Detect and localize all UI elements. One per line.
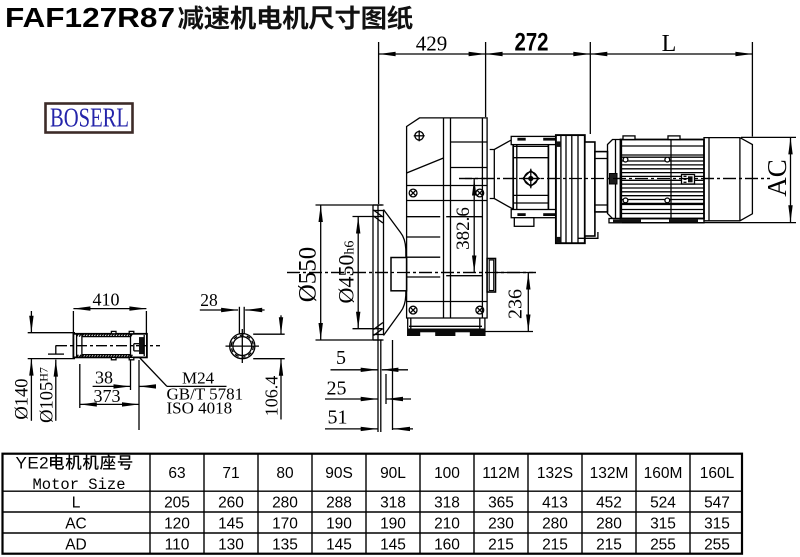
svg-text:315: 315: [704, 516, 730, 533]
svg-text:410: 410: [93, 290, 120, 310]
svg-text:145: 145: [380, 537, 406, 554]
svg-text:BOSERL: BOSERL: [50, 103, 129, 133]
svg-text:382.6: 382.6: [453, 207, 474, 250]
svg-text:132S: 132S: [537, 465, 573, 482]
svg-text:288: 288: [326, 495, 352, 512]
svg-text:130: 130: [218, 537, 244, 554]
svg-text:90L: 90L: [380, 465, 406, 482]
svg-text:28: 28: [200, 290, 218, 310]
svg-text:365: 365: [488, 495, 514, 512]
svg-text:318: 318: [434, 495, 460, 512]
svg-text:272: 272: [515, 29, 549, 57]
svg-text:190: 190: [326, 516, 352, 533]
svg-text:Ø550: Ø550: [295, 247, 322, 303]
svg-text:5: 5: [336, 347, 346, 369]
svg-text:38: 38: [95, 368, 113, 388]
svg-text:315: 315: [650, 516, 676, 533]
svg-text:373: 373: [94, 386, 121, 406]
svg-text:FAF127R87: FAF127R87: [5, 2, 175, 33]
svg-text:190: 190: [380, 516, 406, 533]
svg-text:90S: 90S: [325, 465, 353, 482]
svg-text:L: L: [662, 31, 677, 57]
svg-text:80: 80: [276, 465, 294, 482]
svg-text:280: 280: [272, 495, 298, 512]
svg-text:120: 120: [164, 516, 190, 533]
svg-text:145: 145: [326, 537, 352, 554]
svg-text:260: 260: [218, 495, 244, 512]
svg-text:YE2: YE2: [16, 454, 50, 473]
svg-text:112M: 112M: [482, 465, 520, 482]
svg-text:524: 524: [650, 495, 676, 512]
svg-text:452: 452: [596, 495, 622, 512]
svg-text:132M: 132M: [590, 465, 629, 482]
svg-text:25: 25: [327, 378, 347, 400]
svg-text:210: 210: [434, 516, 460, 533]
svg-text:110: 110: [165, 537, 190, 554]
svg-text:230: 230: [488, 516, 514, 533]
svg-text:215: 215: [488, 537, 514, 554]
svg-text:135: 135: [272, 537, 298, 554]
svg-text:215: 215: [542, 537, 568, 554]
svg-text:160L: 160L: [700, 465, 735, 482]
svg-text:160: 160: [434, 537, 460, 554]
svg-text:106.4: 106.4: [262, 376, 282, 417]
svg-text:71: 71: [222, 465, 239, 482]
svg-text:236: 236: [505, 289, 527, 319]
svg-text:Ø140: Ø140: [13, 378, 33, 419]
svg-text:429: 429: [416, 32, 448, 56]
svg-text:205: 205: [164, 495, 190, 512]
svg-text:AC: AC: [762, 159, 792, 197]
svg-text:170: 170: [272, 516, 298, 533]
svg-text:255: 255: [650, 537, 676, 554]
svg-text:160M: 160M: [644, 465, 683, 482]
svg-text:145: 145: [218, 516, 244, 533]
svg-text:547: 547: [704, 495, 730, 512]
svg-text:100: 100: [434, 465, 460, 482]
svg-text:413: 413: [542, 495, 568, 512]
svg-text:318: 318: [380, 495, 406, 512]
svg-text:255: 255: [704, 537, 730, 554]
svg-text:AD: AD: [65, 537, 87, 554]
svg-text:ISO 4018: ISO 4018: [167, 399, 233, 418]
svg-text:AC: AC: [65, 516, 87, 533]
svg-text:280: 280: [542, 516, 568, 533]
svg-text:280: 280: [596, 516, 622, 533]
svg-text:Motor Size: Motor Size: [32, 476, 125, 494]
svg-text:63: 63: [168, 465, 185, 482]
svg-text:L: L: [72, 495, 81, 512]
svg-text:51: 51: [328, 407, 348, 429]
svg-text:215: 215: [596, 537, 622, 554]
